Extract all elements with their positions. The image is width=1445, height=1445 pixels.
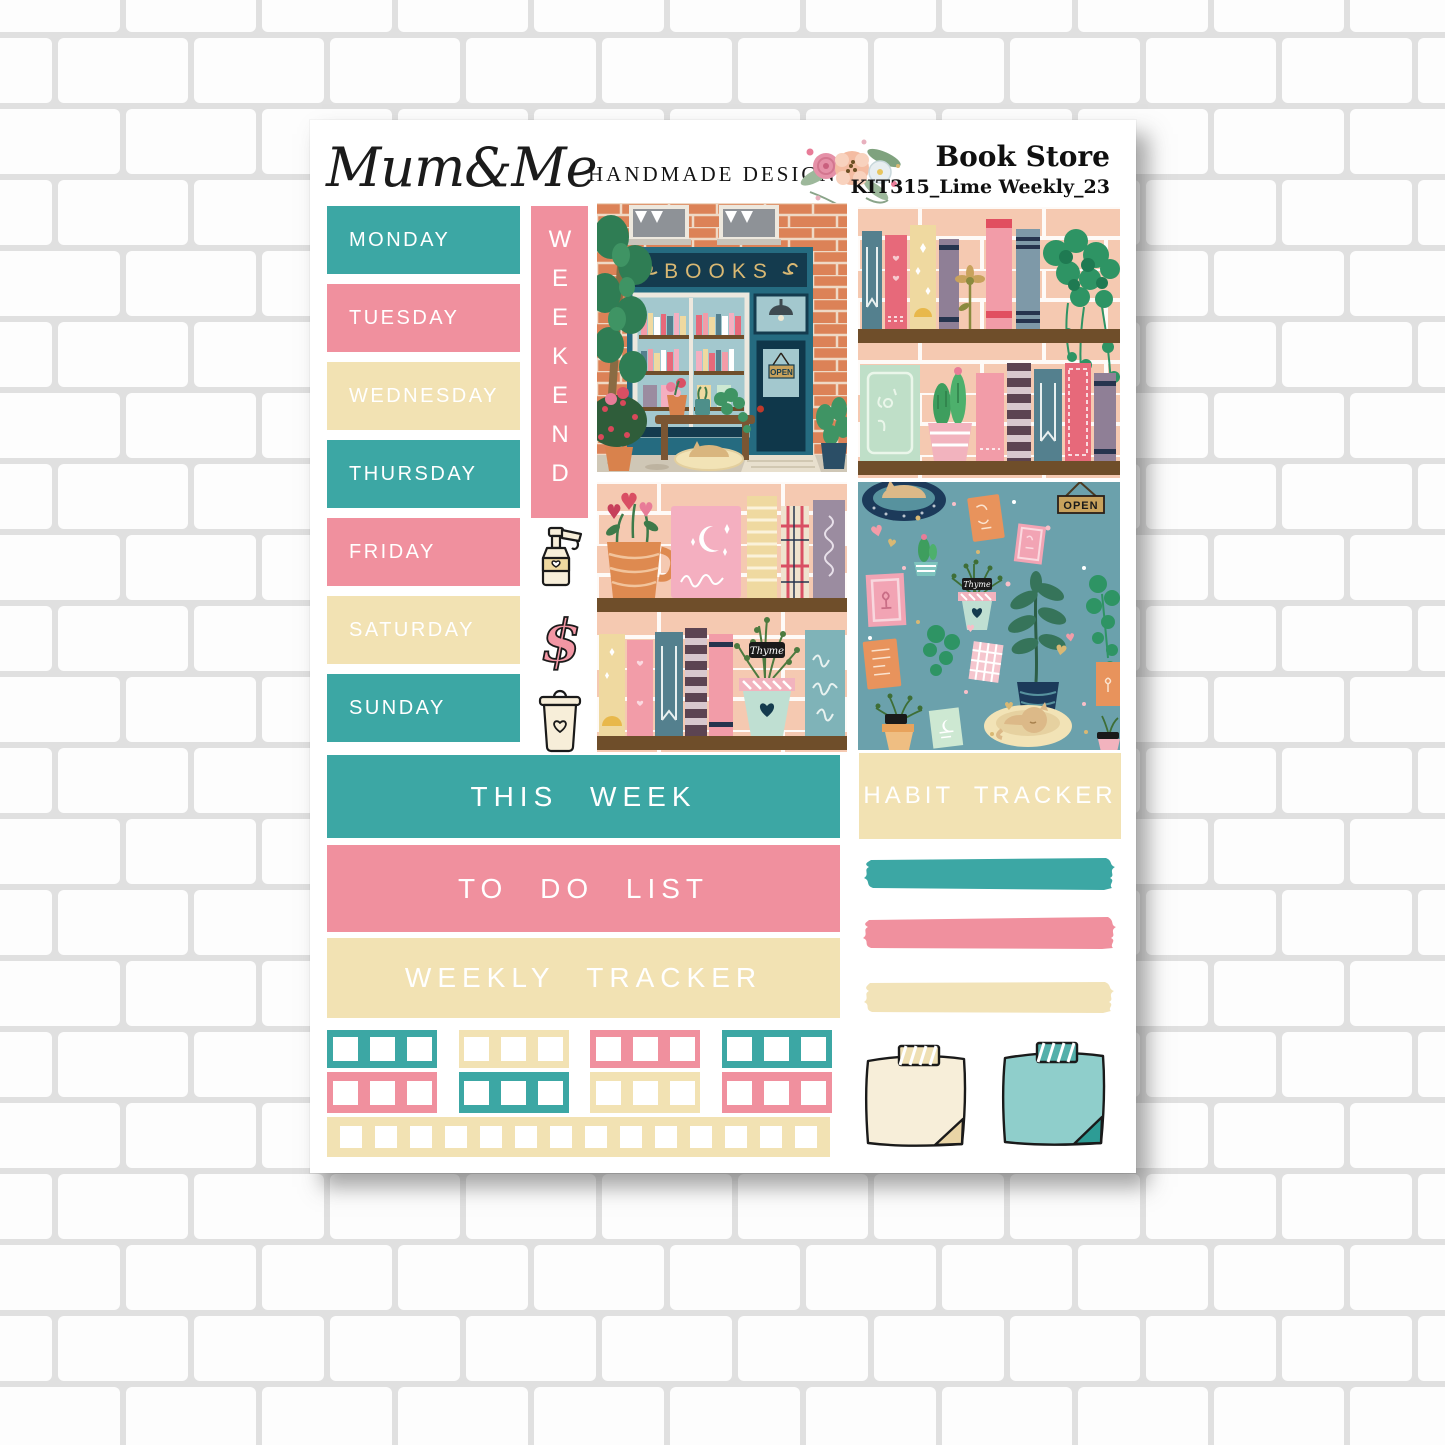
- sticky-note-aqua: [995, 1040, 1119, 1154]
- subway-tile: [1282, 606, 1412, 671]
- subway-tile: [1010, 1316, 1140, 1381]
- bookstore-illustration: BOOKS: [597, 203, 847, 472]
- checkbox: [760, 1126, 782, 1148]
- subway-tile: [58, 180, 188, 245]
- day-label: FRIDAY: [349, 541, 436, 564]
- checkbox: [538, 1081, 563, 1105]
- subway-tile: [398, 1245, 528, 1310]
- subway-tile: [1282, 1032, 1412, 1097]
- subway-tile: [1282, 890, 1412, 955]
- subway-tile: [58, 38, 188, 103]
- subway-tile: [466, 1316, 596, 1381]
- svg-text:$: $: [541, 609, 581, 673]
- day-label: TUESDAY: [349, 307, 459, 330]
- checkbox: [445, 1126, 467, 1148]
- checkbox: [464, 1037, 489, 1061]
- subway-tile: [1418, 1032, 1445, 1097]
- shelf-illustration: Thyme: [597, 482, 847, 752]
- subway-tile: [0, 1103, 120, 1168]
- subway-tile: [466, 1174, 596, 1239]
- svg-text:BOOKS: BOOKS: [664, 260, 774, 283]
- subway-tile: [534, 0, 664, 32]
- subway-tile: [1282, 180, 1412, 245]
- checkbox-strip-sticker: [722, 1072, 832, 1113]
- svg-text:Thyme: Thyme: [963, 580, 991, 589]
- to-do-list-sticker: TO DO LIST: [327, 845, 840, 932]
- subway-tile: [398, 1387, 528, 1445]
- subway-tile: [194, 606, 324, 671]
- subway-tile: [58, 1032, 188, 1097]
- svg-text:♥: ♥: [1065, 631, 1077, 645]
- subway-tile: [1146, 464, 1276, 529]
- checkbox-strip-sticker: [327, 1072, 437, 1113]
- subway-tile: [0, 180, 52, 245]
- subway-tile: [0, 890, 52, 955]
- subway-tile: [330, 1316, 460, 1381]
- subway-tile: [126, 535, 256, 600]
- subway-tile: [1146, 38, 1276, 103]
- subway-tile: [126, 109, 256, 174]
- svg-text:♥: ♥: [966, 624, 975, 635]
- subway-tile: [670, 1387, 800, 1445]
- subway-tile: [1418, 748, 1445, 813]
- tile-row: [0, 1174, 1445, 1239]
- subway-tile: [126, 1245, 256, 1310]
- checkbox: [480, 1126, 502, 1148]
- washi-strip-pink: [859, 912, 1123, 954]
- subway-tile: [126, 0, 256, 32]
- subway-tile: [1350, 677, 1445, 742]
- subway-tile: [1350, 1245, 1445, 1310]
- checkbox: [501, 1037, 526, 1061]
- checkbox-strip-sticker: [327, 1030, 437, 1068]
- checkbox-strip-sticker: [459, 1072, 569, 1113]
- washi-strip-cream: [859, 976, 1123, 1018]
- subway-tile: [1282, 38, 1412, 103]
- subway-tile: [0, 322, 52, 387]
- checkbox: [407, 1037, 432, 1061]
- subway-tile: [1214, 961, 1344, 1026]
- subway-tile: [194, 1174, 324, 1239]
- svg-text:OPEN: OPEN: [770, 368, 793, 377]
- day-label: THURSDAY: [349, 463, 478, 486]
- kit-code: KIT315_Lime Weekly_23: [851, 176, 1110, 198]
- subway-tile: [126, 1103, 256, 1168]
- checkbox: [725, 1126, 747, 1148]
- subway-tile: [1078, 0, 1208, 32]
- subway-tile: [1214, 251, 1344, 316]
- day-label: MONDAY: [349, 229, 450, 252]
- checkbox: [596, 1081, 621, 1105]
- subway-tile: [1418, 606, 1445, 671]
- checkbox-strip-sticker: [722, 1030, 832, 1068]
- day-label: SUNDAY: [349, 697, 446, 720]
- subway-tile: [1146, 322, 1276, 387]
- subway-tile: [0, 109, 120, 174]
- kit-title: Book Store: [935, 140, 1110, 173]
- subway-tile: [398, 0, 528, 32]
- tile-row: [0, 38, 1445, 103]
- subway-tile: [738, 1316, 868, 1381]
- svg-text:OPEN: OPEN: [1063, 500, 1098, 512]
- day-sticker-saturday: SATURDAY: [327, 596, 520, 664]
- subway-tile: [1350, 535, 1445, 600]
- subway-tile: [194, 748, 324, 813]
- subway-tile: [194, 1032, 324, 1097]
- subway-tile: [1282, 748, 1412, 813]
- checkbox-row: [327, 1072, 832, 1113]
- checkbox: [727, 1037, 752, 1061]
- subway-tile: [806, 1387, 936, 1445]
- sticky-note-cream: [858, 1043, 980, 1155]
- subway-tile: [1350, 393, 1445, 458]
- subway-tile: [194, 890, 324, 955]
- subway-tile: [1214, 1103, 1344, 1168]
- checkbox: [727, 1081, 752, 1105]
- checkbox-strip-sticker: [590, 1072, 700, 1113]
- subway-tile: [1282, 1316, 1412, 1381]
- subway-tile: [194, 180, 324, 245]
- day-label: SATURDAY: [349, 619, 475, 642]
- checkbox: [801, 1037, 826, 1061]
- subway-tile: [0, 748, 52, 813]
- weekend-sticker: WEEKEND: [531, 206, 588, 518]
- subway-tile: [126, 251, 256, 316]
- subway-tile: [1214, 109, 1344, 174]
- subway-tile: [0, 0, 120, 32]
- subway-tile: [0, 677, 120, 742]
- subway-tile: [194, 38, 324, 103]
- subway-tile: [126, 677, 256, 742]
- subway-tile: [58, 322, 188, 387]
- checkbox-strip-sticker: [590, 1030, 700, 1068]
- subway-tile: [874, 1316, 1004, 1381]
- subway-tile: [0, 1245, 120, 1310]
- subway-tile: [0, 464, 52, 529]
- checkbox: [585, 1126, 607, 1148]
- day-sticker-friday: FRIDAY: [327, 518, 520, 586]
- subway-tile: [1418, 890, 1445, 955]
- subway-tile: [126, 961, 256, 1026]
- subway-tile: [1418, 464, 1445, 529]
- subway-tile: [262, 1387, 392, 1445]
- subway-tile: [0, 1174, 52, 1239]
- subway-tile: [0, 1032, 52, 1097]
- checkbox: [515, 1126, 537, 1148]
- subway-tile: [1350, 819, 1445, 884]
- subway-tile: [0, 251, 120, 316]
- subway-tile: [942, 1245, 1072, 1310]
- subway-tile: [534, 1387, 664, 1445]
- checkbox: [764, 1037, 789, 1061]
- subway-tile: [1146, 606, 1276, 671]
- subway-tile: [262, 1245, 392, 1310]
- subway-tile: [670, 0, 800, 32]
- subway-tile: [1350, 961, 1445, 1026]
- spray-bottle-icon: [535, 525, 585, 589]
- subway-tile: [1282, 1174, 1412, 1239]
- subway-tile: [58, 1174, 188, 1239]
- subway-tile: [58, 748, 188, 813]
- tile-row: [0, 1316, 1445, 1381]
- subway-tile: [126, 393, 256, 458]
- subway-tile: [58, 890, 188, 955]
- subway-tile: [0, 1387, 120, 1445]
- day-sticker-wednesday: WEDNESDAY: [327, 362, 520, 430]
- day-sticker-monday: MONDAY: [327, 206, 520, 274]
- day-sticker-thursday: THURSDAY: [327, 440, 520, 508]
- flower-bouquet-icon: [796, 128, 906, 214]
- checkbox: [795, 1126, 817, 1148]
- subway-tile: [0, 393, 120, 458]
- bookshelf-illustration: [858, 207, 1120, 478]
- checkbox: [670, 1037, 695, 1061]
- subway-tile: [1350, 1103, 1445, 1168]
- subway-tile: [58, 464, 188, 529]
- tile-row: [0, 1245, 1445, 1310]
- subway-tile: [602, 1316, 732, 1381]
- checkbox: [370, 1037, 395, 1061]
- checkbox: [464, 1081, 489, 1105]
- checkbox-strip-sticker: [459, 1030, 569, 1068]
- checkbox: [596, 1037, 621, 1061]
- subway-tile: [738, 38, 868, 103]
- subway-tile: [1146, 1174, 1276, 1239]
- subway-tile: [1146, 1316, 1276, 1381]
- checkbox: [340, 1126, 362, 1148]
- subway-tile: [1418, 322, 1445, 387]
- checkbox: [633, 1081, 658, 1105]
- subway-tile: [1282, 464, 1412, 529]
- day-label: WEDNESDAY: [349, 385, 499, 408]
- subway-tile: [1078, 1245, 1208, 1310]
- subway-tile: [330, 38, 460, 103]
- checkbox: [375, 1126, 397, 1148]
- subway-tile: [1350, 0, 1445, 32]
- subway-tile: [1214, 393, 1344, 458]
- subway-tile: [1214, 1245, 1344, 1310]
- pattern-illustration: OPEN Thym: [858, 482, 1120, 750]
- subway-tile: [806, 1245, 936, 1310]
- subway-tile: [1146, 180, 1276, 245]
- subway-tile: [58, 606, 188, 671]
- subway-tile: [1010, 1174, 1140, 1239]
- subway-tile: [0, 1316, 52, 1381]
- subway-tile: [738, 1174, 868, 1239]
- subway-tile: [1418, 180, 1445, 245]
- subway-tile: [806, 0, 936, 32]
- subway-tile: [534, 1245, 664, 1310]
- checkbox: [407, 1081, 432, 1105]
- checkbox: [764, 1081, 789, 1105]
- long-checkbox-strip: [327, 1117, 830, 1157]
- checkbox: [333, 1037, 358, 1061]
- tile-row: [0, 0, 1445, 32]
- subway-tile: [1010, 38, 1140, 103]
- day-sticker-sunday: SUNDAY: [327, 674, 520, 742]
- habit-tracker-sticker: HABIT TRACKER: [859, 753, 1121, 839]
- subway-tile: [1146, 890, 1276, 955]
- checkbox: [501, 1081, 526, 1105]
- subway-tile: [330, 1174, 460, 1239]
- subway-tile: [0, 535, 120, 600]
- subway-tile: [1350, 109, 1445, 174]
- subway-tile: [0, 606, 52, 671]
- subway-tile: [466, 38, 596, 103]
- subway-tile: [1418, 38, 1445, 103]
- subway-tile: [0, 819, 120, 884]
- checkbox: [690, 1126, 712, 1148]
- subway-tile: [0, 38, 52, 103]
- sticker-sheet: Mum&Me HANDMADE DESIGNS Book Store KIT31…: [310, 120, 1136, 1173]
- subway-tile: [1418, 1174, 1445, 1239]
- tile-row: [0, 1387, 1445, 1445]
- subway-tile: [1078, 1387, 1208, 1445]
- this-week-sticker: THIS WEEK: [327, 755, 840, 838]
- subway-tile: [602, 38, 732, 103]
- washi-strip-teal: [859, 853, 1123, 895]
- subway-tile: [0, 961, 120, 1026]
- subway-tile: [1418, 1316, 1445, 1381]
- trash-can-icon: [534, 689, 586, 753]
- checkbox: [550, 1126, 572, 1148]
- subway-tile: [194, 322, 324, 387]
- subway-tile: [874, 1174, 1004, 1239]
- svg-text:Thyme: Thyme: [750, 646, 784, 657]
- subway-tile: [1214, 0, 1344, 32]
- weekly-tracker-sticker: WEEKLY TRACKER: [327, 938, 840, 1018]
- subway-tile: [874, 38, 1004, 103]
- subway-tile: [1350, 251, 1445, 316]
- subway-tile: [1146, 1032, 1276, 1097]
- subway-tile: [126, 819, 256, 884]
- dollar-sign-icon: $: [541, 609, 581, 673]
- svg-text:♥: ♥: [1004, 700, 1014, 713]
- subway-tile: [58, 1316, 188, 1381]
- checkbox: [633, 1037, 658, 1061]
- subway-tile: [126, 1387, 256, 1445]
- checkbox: [801, 1081, 826, 1105]
- checkbox: [370, 1081, 395, 1105]
- subway-tile: [602, 1174, 732, 1239]
- subway-tile: [262, 0, 392, 32]
- brand-logo: Mum&Me: [326, 136, 597, 199]
- subway-tile: [1282, 322, 1412, 387]
- subway-tile: [942, 1387, 1072, 1445]
- subway-tile: [1146, 748, 1276, 813]
- checkbox: [333, 1081, 358, 1105]
- subway-tile: [670, 1245, 800, 1310]
- subway-tile: [194, 1316, 324, 1381]
- subway-tile: [194, 464, 324, 529]
- checkbox-row: [327, 1030, 832, 1068]
- subway-tile: [1214, 535, 1344, 600]
- subway-tile: [1350, 1387, 1445, 1445]
- checkbox: [538, 1037, 563, 1061]
- subway-tile: [942, 0, 1072, 32]
- subway-tile: [1214, 677, 1344, 742]
- subway-tile: [1214, 1387, 1344, 1445]
- checkbox: [670, 1081, 695, 1105]
- checkbox: [655, 1126, 677, 1148]
- day-sticker-tuesday: TUESDAY: [327, 284, 520, 352]
- subway-tile: [1214, 819, 1344, 884]
- checkbox: [410, 1126, 432, 1148]
- checkbox: [620, 1126, 642, 1148]
